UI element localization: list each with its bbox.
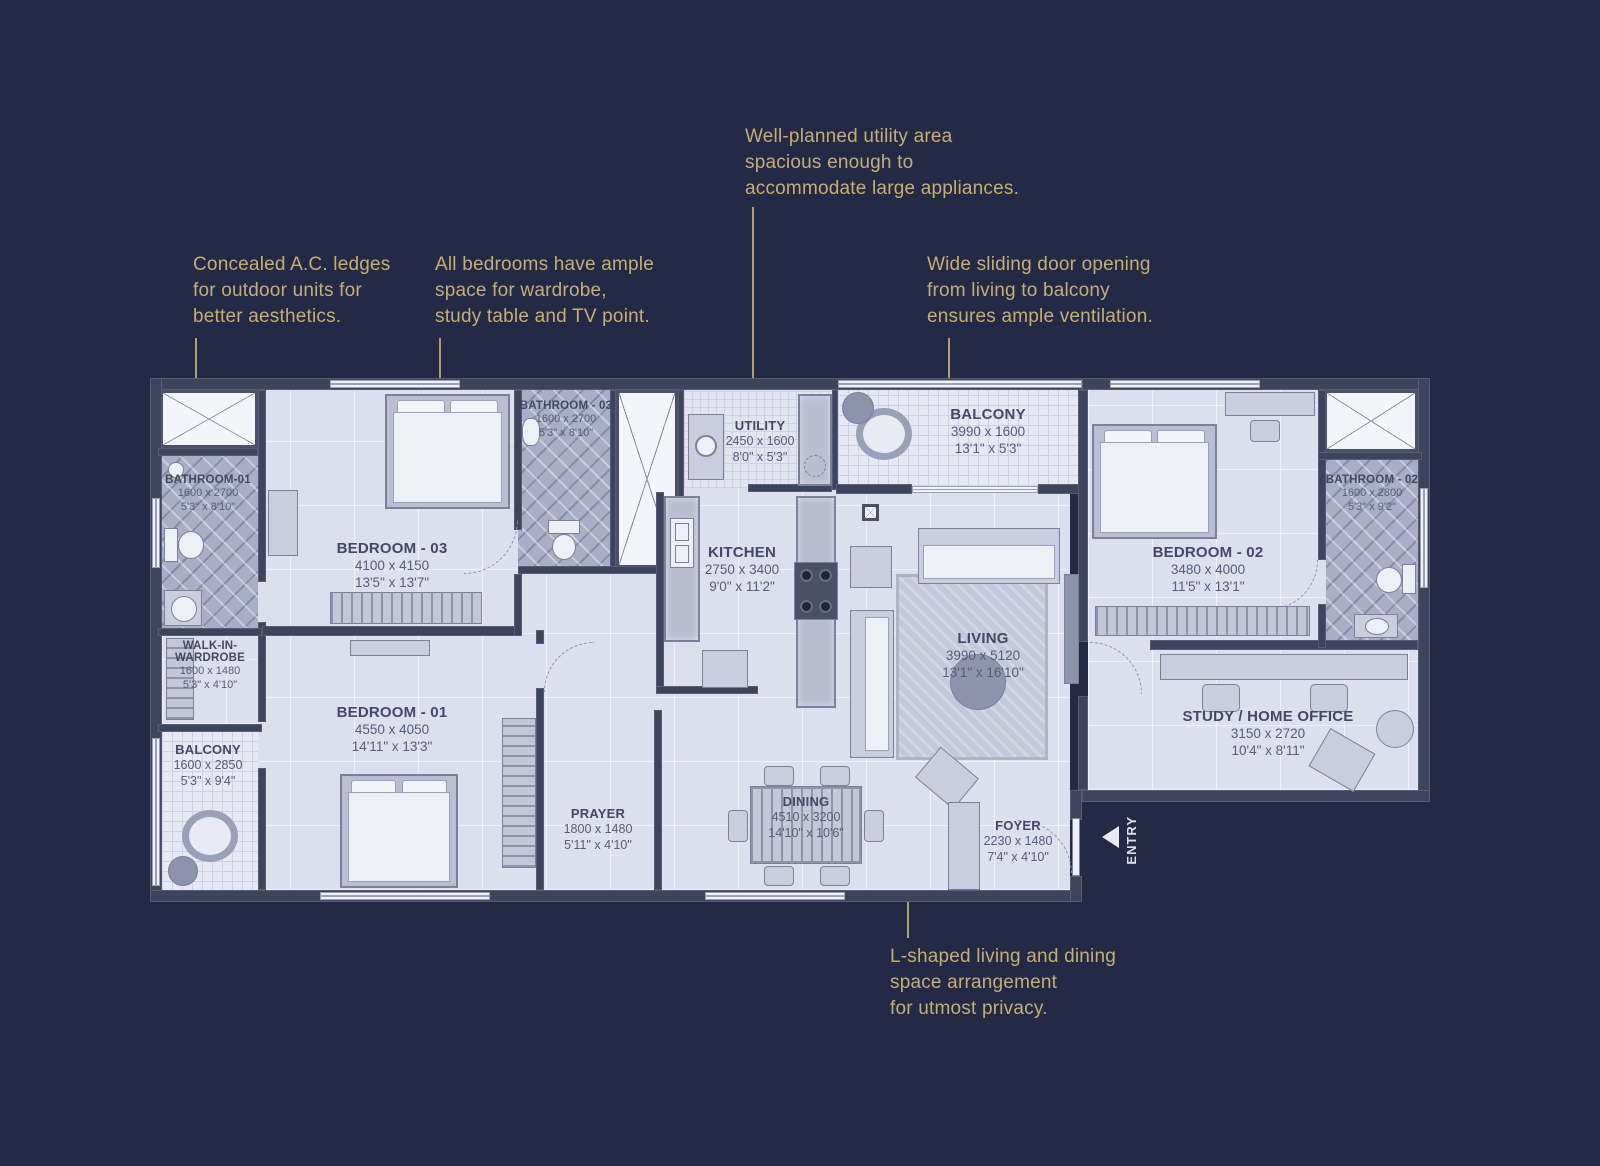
annotation-sliding-door: Wide sliding door opening from living to… [927, 252, 1153, 330]
chair [728, 810, 748, 842]
room-dim-ft: 5'3" x 4'10" [167, 678, 253, 692]
vanity-sink [1354, 614, 1398, 638]
wall [836, 484, 912, 494]
room-name: STUDY / HOME OFFICE [1182, 708, 1353, 725]
room-name: BATHROOM - 02 [1326, 474, 1418, 486]
room-label-prayer: PRAYER 1800 x 1480 5'11" x 4'10" [564, 806, 633, 853]
window [320, 892, 490, 900]
room-dim-ft: 10'4" x 8'11" [1182, 742, 1353, 759]
wall [262, 626, 518, 636]
side-table [1376, 710, 1414, 748]
column-marker-crossbox [862, 504, 879, 521]
utility-counter [798, 394, 832, 486]
desk [1160, 654, 1408, 680]
wardrobe-unit [502, 718, 536, 868]
room-dim-ft: 7'4" x 4'10" [984, 849, 1053, 865]
room-dim-mm: 1600 x 1480 [167, 664, 253, 678]
room-name: DINING [768, 794, 844, 809]
room-dim-mm: 3150 x 2720 [1182, 725, 1353, 742]
sink-bowl [675, 545, 689, 563]
room-name: FOYER [984, 818, 1053, 833]
toilet-tank [548, 520, 580, 534]
side-table [850, 546, 892, 588]
annotation-ac-ledges: Concealed A.C. ledges for outdoor units … [193, 252, 391, 330]
room-label-utility: UTILITY 2450 x 1600 8'0" x 5'3" [726, 418, 795, 465]
round-stool [842, 392, 874, 424]
kitchen-sink [670, 518, 694, 568]
room-name: LIVING [942, 630, 1024, 647]
room-name: KITCHEN [705, 544, 779, 561]
chair [764, 766, 794, 786]
room-dim-mm: 1800 x 1480 [564, 821, 633, 837]
ac-ledge-right-crossbox [1324, 390, 1418, 452]
room-label-bathroom-03: BATHROOM - 03 1600 x 2700 5'3" x 8'10" [520, 400, 612, 440]
sofa [850, 610, 894, 758]
sofa-cushion [865, 617, 889, 751]
room-label-study: STUDY / HOME OFFICE 3150 x 2720 10'4" x … [1182, 708, 1353, 759]
room-dim-mm: 1600 x 2700 [165, 486, 251, 500]
room-dim-ft: 8'0" x 5'3" [726, 449, 795, 465]
wall [1418, 378, 1430, 802]
room-dim-mm: 3990 x 1600 [950, 423, 1026, 440]
chair [820, 766, 850, 786]
round-stool [168, 856, 198, 886]
room-label-balcony-left: BALCONY 1600 x 2850 5'3" x 9'4" [174, 742, 243, 789]
wall [1078, 696, 1088, 790]
room-dim-ft: 5'11" x 4'10" [564, 837, 633, 853]
room-label-dining: DINING 4510 x 3200 14'10" x 10'6" [768, 794, 844, 841]
wall [150, 890, 1082, 902]
tv-unit [350, 640, 430, 656]
chair [864, 810, 884, 842]
sink-basin [171, 596, 197, 622]
room-dim-ft: 5'3" x 8'10" [520, 426, 612, 440]
dresser [268, 490, 298, 556]
chair [1250, 420, 1280, 442]
console-cabinet [948, 802, 980, 890]
annotation-line: for outdoor units for [193, 278, 391, 304]
room-name: BALCONY [950, 406, 1026, 423]
desk [1225, 392, 1315, 416]
room-label-foyer: FOYER 2230 x 1480 7'4" x 4'10" [984, 818, 1053, 865]
wall [1078, 390, 1088, 642]
sink-basin [1365, 618, 1389, 635]
room-dim-mm: 4510 x 3200 [768, 809, 844, 825]
room-label-bathroom-02: BATHROOM - 02 1600 x 2800 5'3" x 9'2" [1326, 474, 1418, 514]
room-dim-mm: 4100 x 4150 [337, 557, 448, 574]
annotation-line: Wide sliding door opening [927, 252, 1153, 278]
wall [654, 710, 662, 890]
leader-line-utility [752, 207, 754, 406]
window [1110, 380, 1260, 388]
mattress [1100, 442, 1209, 533]
sliding-door [912, 486, 1038, 493]
annotation-bedrooms: All bedrooms have ample space for wardro… [435, 252, 654, 330]
toilet-bowl [552, 534, 576, 560]
window [152, 498, 160, 568]
annotation-line: study table and TV point. [435, 304, 654, 330]
wall [656, 492, 664, 692]
vanity-sink [164, 590, 202, 626]
room-dim-ft: 9'0" x 11'2" [705, 578, 779, 595]
room-dim-ft: 13'5" x 13'7" [337, 574, 448, 591]
wall [1318, 452, 1422, 460]
room-name: BEDROOM - 01 [337, 704, 448, 721]
annotation-utility: Well-planned utility area spacious enoug… [745, 124, 1019, 202]
sofa-cushion [923, 545, 1055, 579]
sofa [918, 528, 1060, 584]
room-label-bathroom-01: BATHROOM-01 1600 x 2700 5'3" x 8'10" [165, 474, 251, 514]
annotation-line: space for wardrobe, [435, 278, 654, 304]
wall [1150, 640, 1418, 650]
room-name: UTILITY [726, 418, 795, 433]
room-dim-ft: 13'1" x 16'10" [942, 664, 1024, 681]
room-dim-mm: 2450 x 1600 [726, 433, 795, 449]
annotation-line: for utmost privacy. [890, 996, 1116, 1022]
room-label-bedroom-03: BEDROOM - 03 4100 x 4150 13'5" x 13'7" [337, 540, 448, 591]
wall [258, 390, 266, 582]
entry-arrow-icon [1102, 826, 1119, 848]
room-name: BEDROOM - 03 [337, 540, 448, 557]
lounge-chair [182, 810, 238, 862]
washer-drum [695, 435, 717, 457]
wall [1082, 790, 1430, 802]
room-name: BALCONY [174, 742, 243, 757]
ac-ledge-left-crossbox [160, 390, 258, 448]
annotation-line: Concealed A.C. ledges [193, 252, 391, 278]
wall [536, 688, 544, 890]
wall [258, 768, 266, 890]
room-dim-ft: 14'10" x 10'6" [768, 825, 844, 841]
burner [819, 600, 832, 613]
annotation-line: All bedrooms have ample [435, 252, 654, 278]
chair [764, 866, 794, 886]
tv-unit [1064, 574, 1079, 684]
entry-door-leaf [1072, 818, 1080, 876]
room-dim-mm: 4550 x 4050 [337, 721, 448, 738]
toilet-bowl [178, 531, 204, 559]
bed [385, 394, 510, 509]
annotation-line: from living to balcony [927, 278, 1153, 304]
wall [536, 630, 544, 644]
room-name: BATHROOM-01 [165, 474, 251, 486]
room-dim-mm: 1600 x 2850 [174, 757, 243, 773]
mattress [393, 412, 502, 503]
wardrobe-unit [1095, 606, 1310, 636]
annotation-line: spacious enough to [745, 150, 1019, 176]
bed [1092, 424, 1217, 539]
wall [1070, 790, 1082, 820]
room-dim-mm: 2750 x 3400 [705, 561, 779, 578]
annotation-line: L-shaped living and dining [890, 944, 1116, 970]
room-dim-ft: 5'3" x 8'10" [165, 500, 251, 514]
stove [794, 562, 838, 620]
bed [340, 774, 458, 888]
annotation-line: ensures ample ventilation. [927, 304, 1153, 330]
window [705, 892, 845, 900]
balcony-railing [838, 380, 1082, 388]
annotation-lshape: L-shaped living and dining space arrange… [890, 944, 1116, 1022]
wall [832, 390, 838, 490]
washing-machine [688, 414, 724, 480]
burner [800, 569, 813, 582]
room-label-kitchen: KITCHEN 2750 x 3400 9'0" x 11'2" [705, 544, 779, 595]
wall [158, 448, 258, 456]
floor-plan: BATHROOM-01 1600 x 2700 5'3" x 8'10" WAL… [150, 378, 1430, 902]
chair [820, 866, 850, 886]
room-dim-mm: 1600 x 2700 [520, 412, 612, 426]
sink-bowl [675, 523, 689, 541]
entry-label: ENTRY [1124, 816, 1139, 865]
room-label-bedroom-01: BEDROOM - 01 4550 x 4050 14'11" x 13'3" [337, 704, 448, 755]
annotation-line: Well-planned utility area [745, 124, 1019, 150]
room-dim-ft: 11'5" x 13'1" [1153, 578, 1264, 595]
room-name: PRAYER [564, 806, 633, 821]
window [330, 380, 460, 388]
annotation-line: accommodate large appliances. [745, 176, 1019, 202]
annotation-line: space arrangement [890, 970, 1116, 996]
toilet-tank [1402, 564, 1416, 594]
dryer [804, 455, 826, 477]
room-label-living: LIVING 3990 x 5120 13'1" x 16'10" [942, 630, 1024, 681]
room-label-balcony-top: BALCONY 3990 x 1600 13'1" x 5'3" [950, 406, 1026, 457]
fridge [702, 650, 748, 688]
room-dim-ft: 14'11" x 13'3" [337, 738, 448, 755]
room-dim-mm: 1600 x 2800 [1326, 486, 1418, 500]
room-name: WALK-IN-WARDROBE [167, 640, 253, 664]
burner [819, 569, 832, 582]
annotation-line: better aesthetics. [193, 304, 391, 330]
room-label-bedroom-02: BEDROOM - 02 3480 x 4000 11'5" x 13'1" [1153, 544, 1264, 595]
wardrobe-unit [330, 592, 482, 624]
room-name: BEDROOM - 02 [1153, 544, 1264, 561]
mattress [348, 792, 450, 882]
room-dim-ft: 5'3" x 9'2" [1326, 500, 1418, 514]
wall [258, 622, 266, 722]
wall [1070, 876, 1082, 902]
wall [514, 574, 522, 636]
wall [1318, 604, 1326, 648]
wall [1038, 484, 1082, 494]
floor-plan-page: { "colors": { "background": "#242a45", "… [0, 0, 1600, 1166]
balcony-railing [152, 738, 160, 886]
wall [158, 724, 262, 732]
room-name: BATHROOM - 03 [520, 400, 612, 412]
room-label-wardrobe: WALK-IN-WARDROBE 1600 x 1480 5'3" x 4'10… [167, 640, 253, 692]
room-dim-mm: 3480 x 4000 [1153, 561, 1264, 578]
burner [800, 600, 813, 613]
toilet-tank [164, 528, 178, 562]
wall [158, 628, 262, 636]
toilet-bowl [1376, 567, 1402, 593]
room-dim-ft: 13'1" x 5'3" [950, 440, 1026, 457]
room-dim-ft: 5'3" x 9'4" [174, 773, 243, 789]
room-dim-mm: 3990 x 5120 [942, 647, 1024, 664]
window [1420, 488, 1428, 588]
room-dim-mm: 2230 x 1480 [984, 833, 1053, 849]
